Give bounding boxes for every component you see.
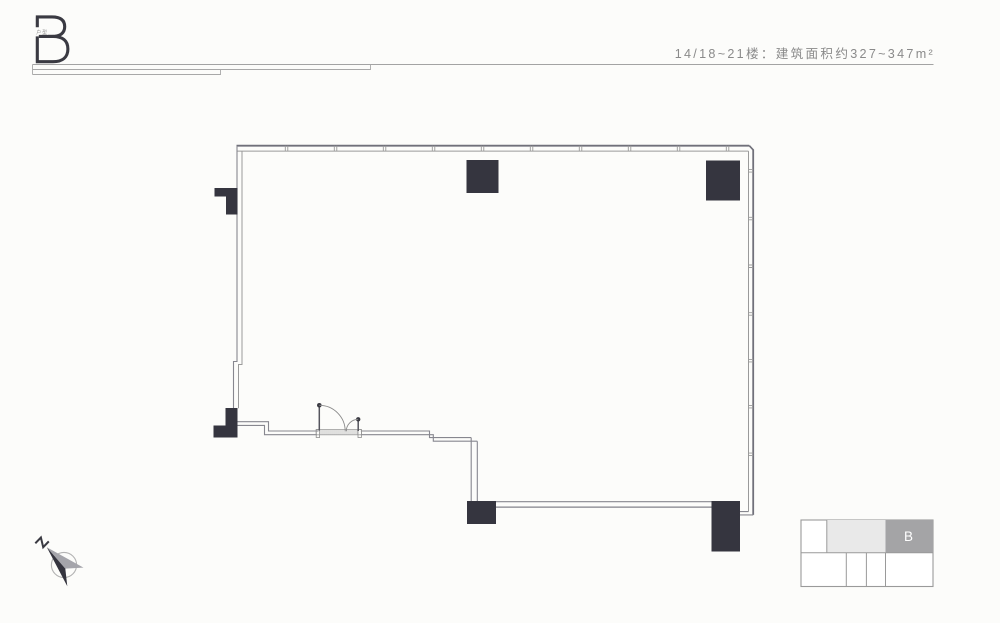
svg-text:B: B <box>904 529 913 544</box>
svg-text:户型: 户型 <box>36 29 48 36</box>
svg-text:14/18~21楼：建筑面积约327~347m²: 14/18~21楼：建筑面积约327~347m² <box>675 46 935 61</box>
